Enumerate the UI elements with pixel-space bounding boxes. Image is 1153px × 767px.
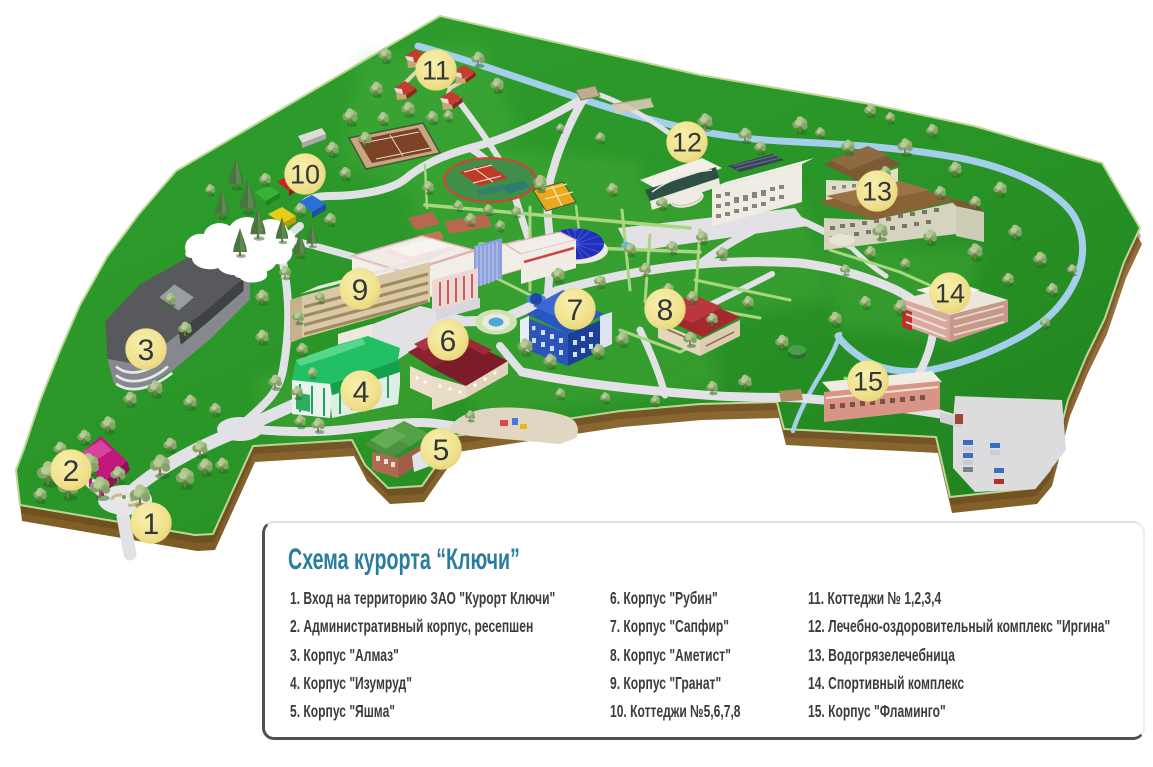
svg-text:5: 5 [433, 434, 450, 467]
svg-text:14: 14 [935, 279, 965, 309]
svg-text:13: 13 [862, 177, 892, 207]
svg-text:6: 6 [440, 325, 457, 358]
svg-text:1: 1 [143, 508, 160, 541]
svg-text:8: 8 [657, 294, 674, 327]
svg-text:10: 10 [290, 160, 320, 190]
svg-text:7: 7 [567, 294, 584, 327]
svg-text:11: 11 [422, 56, 450, 86]
svg-text:9: 9 [352, 274, 369, 307]
svg-text:2: 2 [63, 455, 80, 488]
svg-text:12: 12 [672, 128, 702, 158]
svg-text:3: 3 [138, 334, 155, 367]
svg-text:15: 15 [853, 367, 883, 397]
svg-text:4: 4 [353, 376, 370, 409]
